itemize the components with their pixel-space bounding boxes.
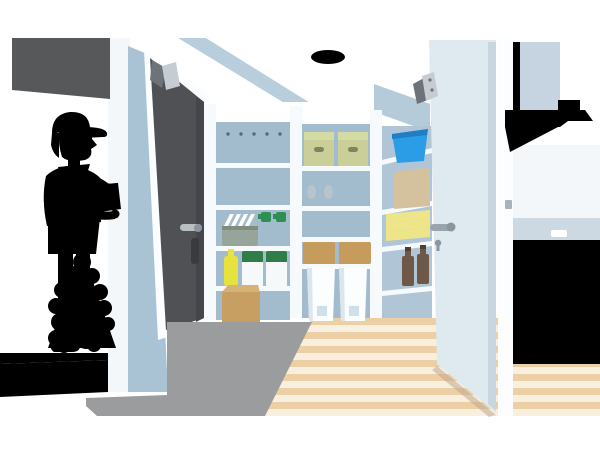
door-edge <box>488 42 496 411</box>
oven-handle <box>518 279 570 289</box>
parcel-tape <box>99 183 105 191</box>
ceiling-light <box>311 50 345 64</box>
door-frame-strip <box>498 38 513 416</box>
rice-bag-window <box>324 185 333 199</box>
pants-hip <box>48 218 100 254</box>
keyhole-tail <box>437 245 440 251</box>
cardboard-top <box>222 285 260 292</box>
kitchen-wall <box>513 145 600 218</box>
leaf <box>96 300 112 316</box>
range-hood-chimney <box>513 42 560 112</box>
bin-label <box>349 306 359 316</box>
leaf <box>57 339 71 353</box>
leaf <box>64 266 80 282</box>
leaf <box>84 268 100 284</box>
backsplash-handle <box>551 230 567 237</box>
entrance-door-shade <box>196 96 204 322</box>
oven-button <box>568 270 577 275</box>
closer-screw <box>428 78 431 81</box>
spray-head <box>276 212 286 222</box>
file-box-hole <box>239 132 242 135</box>
toe-kick <box>513 356 600 364</box>
tote-bag <box>394 168 430 209</box>
green-box-lid <box>338 132 368 140</box>
oven-button <box>568 263 577 268</box>
shelf-b3 <box>302 237 370 242</box>
leaf <box>54 282 70 298</box>
oven-button <box>568 256 577 261</box>
entrance-step <box>0 353 108 397</box>
bottle-cap <box>420 245 426 249</box>
range-hood-flare <box>505 110 593 121</box>
hair <box>51 133 59 158</box>
cheek-blush <box>82 149 88 153</box>
drawer-handle <box>519 289 567 295</box>
file-box-hole <box>265 132 268 135</box>
shelf-a1 <box>216 163 290 168</box>
shelf-b2 <box>302 206 370 211</box>
pantry-post-mid <box>290 106 302 318</box>
brown-bottle <box>402 256 414 286</box>
step-face <box>0 360 108 397</box>
leaf <box>73 281 91 299</box>
jug-body <box>242 262 263 286</box>
door-hinge <box>505 200 512 209</box>
hand <box>111 210 120 219</box>
leaf <box>87 338 101 352</box>
oven-glass <box>525 258 553 273</box>
leaf <box>92 284 108 300</box>
shelf-a2 <box>216 205 290 210</box>
cardboard-box-on-floor <box>222 285 260 322</box>
hand <box>110 185 119 194</box>
basket-rim <box>222 226 258 230</box>
file-box-hole <box>252 132 255 135</box>
file-box-hole <box>226 132 229 135</box>
leaf <box>67 313 85 331</box>
cardboard-front <box>222 292 260 322</box>
door-lever-rose <box>447 223 456 232</box>
closer-screw <box>430 88 433 91</box>
wood-stripe <box>255 402 600 409</box>
file-box-hole <box>278 132 281 135</box>
pantry-post-right <box>370 110 382 332</box>
illustration-stage <box>0 0 600 450</box>
jug-body <box>266 262 287 286</box>
leaf <box>51 313 69 331</box>
countertop <box>513 240 600 248</box>
yellow-bottle <box>224 256 238 286</box>
wood-stripe <box>255 388 600 395</box>
spray-head <box>261 212 271 222</box>
leaf <box>101 317 115 331</box>
green-box-slot <box>348 147 358 152</box>
kitchen <box>505 42 600 364</box>
shelf-b1 <box>302 166 370 171</box>
leaf <box>80 298 96 314</box>
bottle-cap <box>405 247 411 251</box>
wood-stripe <box>255 374 600 381</box>
brown-bottle <box>417 254 429 284</box>
green-box-lid <box>304 132 334 140</box>
awning <box>12 38 110 99</box>
entry-lever-rose <box>194 224 202 232</box>
illustration-canvas <box>0 0 600 450</box>
ceiling-light-core <box>318 53 338 61</box>
face <box>59 129 97 161</box>
range-hood-shade <box>513 42 520 112</box>
bin-label <box>317 306 327 316</box>
range-hood-underside <box>505 121 568 127</box>
drawer-handle <box>519 317 567 323</box>
leaf <box>61 297 79 315</box>
entry-door-lock-bar <box>191 238 199 264</box>
rice-bag-window <box>307 185 316 199</box>
woven-basket <box>339 242 371 264</box>
leaf <box>85 313 103 331</box>
ceiling-slant-trim <box>206 38 320 104</box>
woven-basket <box>303 242 335 264</box>
pantry-post-left <box>204 104 216 320</box>
eye <box>82 139 85 142</box>
bottle-row <box>224 246 287 286</box>
green-box-slot <box>314 147 324 152</box>
